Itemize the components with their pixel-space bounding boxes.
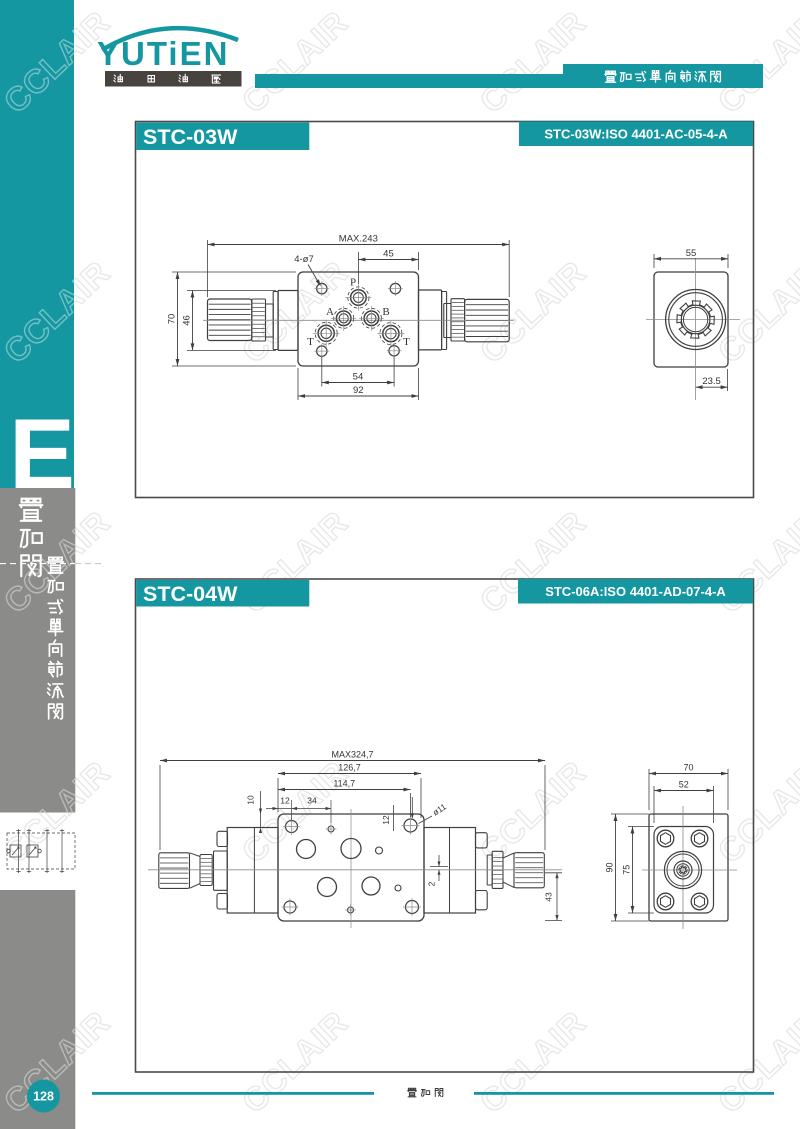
svg-text:CCLAIR: CCLAIR [235,3,355,120]
svg-text:10: 10 [246,795,256,805]
svg-text:128: 128 [33,1090,54,1104]
svg-text:4-ø7: 4-ø7 [294,254,314,265]
svg-text:STC-06A:ISO 4401-AD-07-4-A: STC-06A:ISO 4401-AD-07-4-A [545,584,726,599]
svg-text:B: B [382,306,389,318]
svg-text:T: T [403,336,410,348]
svg-text:CCLAIR: CCLAIR [473,1003,593,1120]
svg-text:STC-04W: STC-04W [143,582,238,606]
svg-text:12: 12 [280,796,290,806]
svg-text:43: 43 [544,892,554,902]
svg-text:CCLAIR: CCLAIR [711,1003,800,1120]
svg-text:CCLAIR: CCLAIR [711,3,800,120]
svg-text:70: 70 [683,763,693,773]
svg-text:CCLAIR: CCLAIR [235,753,355,870]
svg-text:90: 90 [605,862,615,872]
svg-text:A: A [326,306,334,318]
svg-text:12: 12 [381,815,391,825]
svg-text:STC-03W: STC-03W [143,125,238,149]
svg-text:CCLAIR: CCLAIR [473,253,593,370]
svg-text:CCLAIR: CCLAIR [473,3,593,120]
svg-text:126,7: 126,7 [338,763,361,773]
svg-text:E: E [9,398,75,509]
svg-text:45: 45 [383,249,394,260]
svg-text:23.5: 23.5 [702,376,721,387]
svg-text:CCLAIR: CCLAIR [711,753,800,870]
svg-text:T: T [307,336,314,348]
svg-text:92: 92 [353,385,364,396]
svg-text:MAX.243: MAX.243 [339,234,378,245]
svg-text:P: P [350,277,356,289]
svg-text:46: 46 [182,315,193,326]
svg-text:114,7: 114,7 [333,779,355,789]
svg-text:75: 75 [622,865,632,875]
svg-text:52: 52 [679,780,689,790]
svg-text:34: 34 [307,796,317,806]
svg-text:55: 55 [686,248,697,259]
svg-text:ø11: ø11 [431,801,448,817]
svg-text:2: 2 [427,881,437,886]
svg-text:CCLAIR: CCLAIR [235,1003,355,1120]
svg-text:54: 54 [353,372,364,383]
svg-text:70: 70 [167,314,178,325]
svg-text:YUTiEN: YUTiEN [97,35,229,72]
svg-text:STC-03W:ISO 4401-AC-05-4-A: STC-03W:ISO 4401-AC-05-4-A [544,127,728,142]
svg-text:MAX324,7: MAX324,7 [331,750,373,760]
